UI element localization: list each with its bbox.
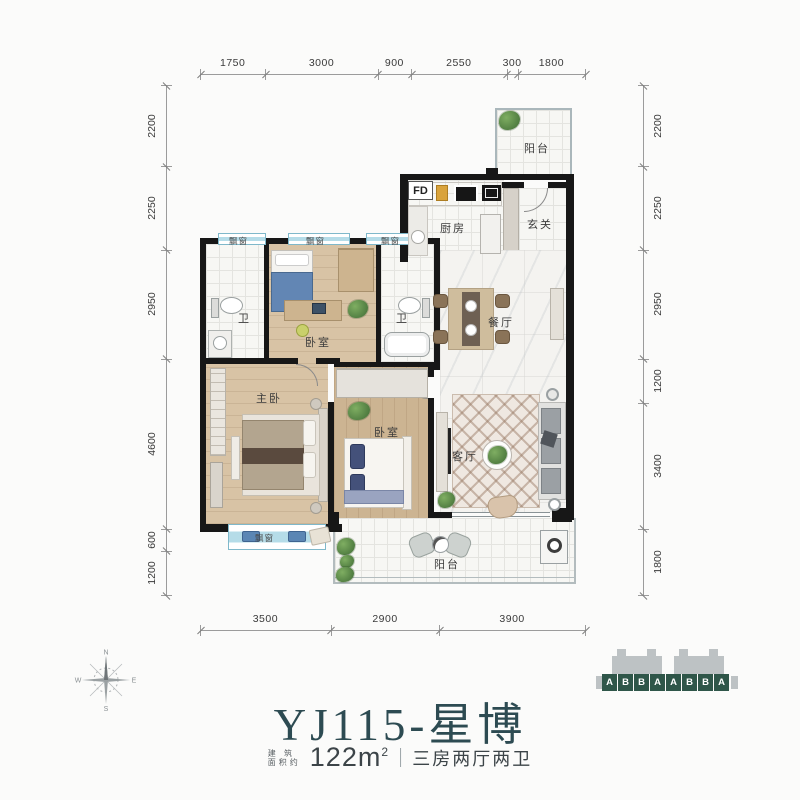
building-tower-left-tab-1 (617, 649, 626, 657)
area-superscript: 2 (381, 745, 389, 759)
layout-spec: 三房两厅两卫 (412, 745, 532, 771)
nightstand-lamp-1 (310, 398, 322, 410)
wall-bedroom2-right-b (428, 398, 434, 512)
label-balcony-top: 阳台 (524, 140, 550, 156)
floorplan-canvas: 1750300090025503001800 350029003900 2200… (0, 0, 800, 800)
wall-bath-left-divider (264, 244, 269, 362)
dining-chair-2 (433, 330, 448, 344)
dining-plate-1 (465, 300, 477, 312)
area-value: 122m2 (310, 742, 389, 773)
balcony-railing-line (335, 577, 574, 578)
bay-cushion (309, 526, 332, 546)
label-bay2: 飘窗 (306, 235, 325, 247)
label-bay1: 飘窗 (229, 235, 248, 247)
nightstand-lamp-2 (310, 502, 322, 514)
area-label: 建 筑 面积约 (268, 749, 301, 767)
wall-left-outer (200, 238, 206, 532)
toilet-left-tank (211, 298, 219, 318)
washing-machine-door (547, 538, 562, 553)
wall-living-bottom-stub (428, 512, 452, 518)
building-tower-right-tab-2 (709, 649, 718, 657)
bay-pillow-2 (288, 531, 306, 542)
building-tower-right-tab-1 (679, 649, 688, 657)
subtitle-separator: | (399, 746, 402, 769)
side-table (548, 498, 561, 511)
label-bath-left: 卫 (238, 310, 251, 326)
wall-entry-top-a (502, 182, 524, 188)
dining-plate-2 (465, 324, 477, 336)
master-pillow-2 (303, 452, 316, 478)
compass-west: W (75, 678, 82, 685)
master-bench (231, 436, 240, 480)
wall-right-outer (566, 174, 574, 520)
sideboard (550, 288, 564, 340)
flue-duct-label: FD (413, 185, 428, 197)
wall-entry-top-b (548, 182, 574, 188)
laptop (312, 303, 326, 314)
wardrobe-top-bedroom (338, 248, 374, 292)
wall-balcony-stub (486, 168, 498, 178)
tv (448, 428, 451, 474)
tv-cabinet (436, 412, 448, 492)
building-tower-left-tab-2 (647, 649, 656, 657)
bed2-throw (344, 490, 404, 504)
wall-kitchen-left (400, 174, 408, 262)
wall-bedroom2-right-a (428, 367, 434, 377)
label-kitchen: 厨房 (440, 220, 466, 236)
building-tower-right (674, 656, 724, 674)
stove (454, 185, 478, 201)
cutting-board (436, 185, 448, 201)
toilet-right-tank (422, 298, 430, 318)
master-runner (242, 448, 304, 464)
floor-lamp (546, 388, 559, 401)
label-bath-right: 卫 (396, 310, 409, 326)
dining-chair-3 (495, 294, 510, 308)
wall-balcony-bottom-stub (333, 512, 339, 524)
label-dining: 餐厅 (488, 314, 514, 330)
balcony-table (432, 536, 449, 553)
label-master: 主卧 (256, 390, 282, 406)
compass-east: E (132, 678, 137, 685)
basin-left (213, 336, 227, 350)
wall-bedroom2-top (334, 362, 440, 367)
wall-bath-right-divider (376, 244, 381, 362)
building-tower-left (612, 656, 662, 674)
bathtub-right (384, 332, 430, 357)
label-balcony-bottom: 阳台 (434, 556, 460, 572)
closet-bedroom2 (336, 368, 428, 398)
label-bay-master: 飘窗 (255, 532, 274, 544)
dresser-master (210, 462, 223, 508)
wall-master-bottom-a (200, 524, 228, 532)
dining-chair-1 (433, 294, 448, 308)
label-bay3: 飘窗 (381, 235, 400, 247)
master-pillow-1 (303, 420, 316, 446)
label-living: 客厅 (452, 448, 478, 464)
area-label-line1: 建 筑 (268, 749, 295, 758)
wall-master-right (328, 402, 334, 524)
bed2-pillow-1 (350, 444, 365, 469)
flue-duct-box: FD (408, 181, 433, 200)
compass-north: N (103, 650, 108, 657)
area-label-line2: 面积约 (268, 758, 301, 767)
wall-master-top-a (200, 358, 298, 364)
kitchen-sink (482, 185, 501, 201)
entry-cabinet (503, 188, 519, 256)
bed-top-pillow (275, 254, 309, 266)
wardrobe-master (210, 368, 226, 456)
dining-chair-4 (495, 330, 510, 344)
plan-subtitle: 建 筑 面积约 122m2 | 三房两厅两卫 (0, 742, 800, 773)
fridge (480, 214, 501, 254)
label-bedroom-top: 卧室 (305, 334, 331, 350)
label-bedroom-second: 卧室 (374, 424, 400, 440)
label-entry: 玄关 (527, 216, 553, 232)
kitchen-basin (411, 230, 425, 244)
sofa-cushion-3 (541, 468, 561, 494)
